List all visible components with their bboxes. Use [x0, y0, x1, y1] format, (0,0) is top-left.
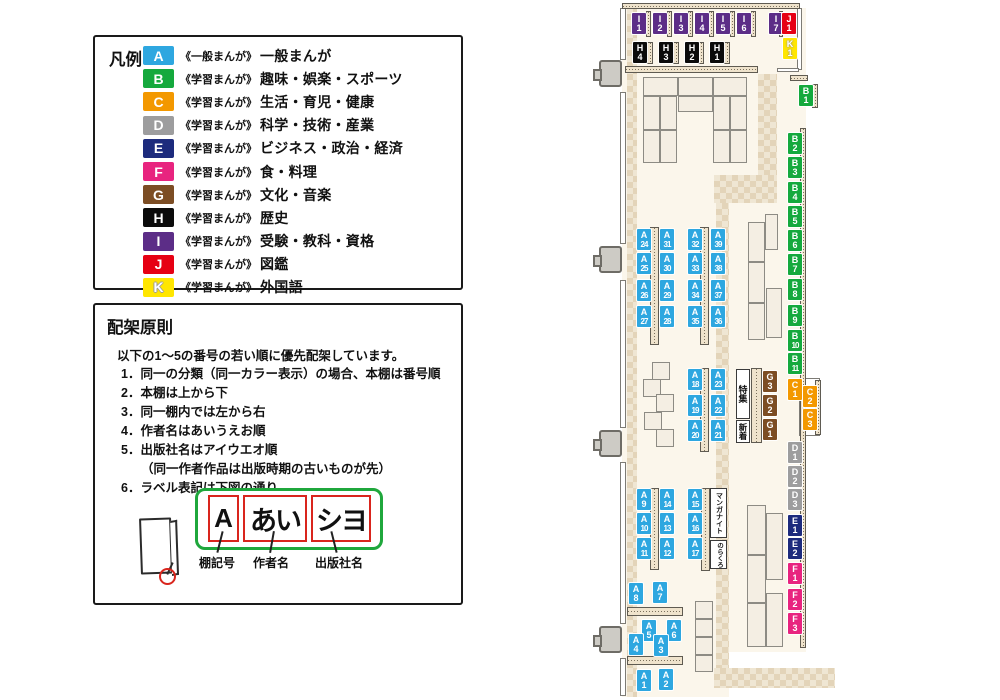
- shelf-block: [652, 362, 670, 380]
- shelf-label-a14: A14: [660, 489, 674, 510]
- shelf-block: [656, 429, 674, 447]
- shelf-label-i3: I3: [674, 13, 688, 34]
- shelf-strip: [627, 656, 683, 665]
- shelf-label-a32: A32: [688, 229, 702, 250]
- shelf-label-j1: J1: [782, 13, 796, 34]
- shelf-label-a30: A30: [660, 253, 674, 274]
- shelf-label-h1: H1: [710, 42, 724, 63]
- shelf-label-i2: I2: [653, 13, 667, 34]
- shelf-label-a6: A6: [667, 620, 681, 641]
- shelf-block: [695, 601, 713, 619]
- shelf-label-a12: A12: [660, 538, 674, 559]
- shelf-label-a18: A18: [688, 369, 702, 390]
- shelf-strip: [724, 42, 730, 64]
- shelf-label-h4: H4: [633, 42, 647, 63]
- shelf-label-b9: B9: [788, 305, 802, 326]
- shelf-label-c3: C3: [803, 409, 817, 430]
- shelf-label-a7: A7: [653, 582, 667, 603]
- shelf-block: [748, 303, 765, 340]
- shelf-label-e1: E1: [788, 515, 802, 536]
- shelf-block: [644, 412, 662, 430]
- shelf-label-a26: A26: [637, 280, 651, 301]
- shelf-label-a37: A37: [711, 280, 725, 301]
- shelf-label-k1: K1: [783, 38, 797, 59]
- shelf-label-a31: A31: [660, 229, 674, 250]
- walkway: [714, 175, 777, 203]
- shelf-label-a34: A34: [688, 280, 702, 301]
- shelf-label-a15: A15: [688, 489, 702, 510]
- shelf-label-a3: A3: [654, 635, 668, 656]
- shelf-label-b8: B8: [788, 279, 802, 300]
- shelf-label-a25: A25: [637, 253, 651, 274]
- shelf-strip: [647, 42, 653, 64]
- wall: [797, 8, 802, 70]
- walkway: [758, 74, 777, 186]
- shelf-strip: [667, 11, 672, 37]
- shelf-label-g3: G3: [763, 371, 777, 392]
- shelf-strip: [701, 488, 710, 571]
- shelf-block: [730, 96, 747, 130]
- shelf-label-a36: A36: [711, 306, 725, 327]
- shelf-label-g1: G1: [763, 419, 777, 440]
- wall: [777, 68, 799, 72]
- shelf-label-c1: C1: [788, 379, 802, 400]
- shelf-strip: [751, 11, 756, 37]
- shelf-label-a9: A9: [637, 489, 651, 510]
- shelf-strip: [622, 3, 800, 9]
- shelf-label-a11: A11: [637, 538, 651, 559]
- shelf-label-b5: B5: [788, 206, 802, 227]
- shelf-block: [643, 96, 660, 130]
- shelf-block: [713, 130, 730, 163]
- shelf-label-b1: B1: [799, 85, 813, 106]
- shelf-label-i5: I5: [716, 13, 730, 34]
- shelf-block: [747, 555, 766, 603]
- shelf-label-a27: A27: [637, 306, 651, 327]
- shelf-label-a19: A19: [688, 395, 702, 416]
- shelf-block: [678, 77, 713, 96]
- feature-box: のらくろ: [710, 540, 727, 569]
- shelf-label-a39: A39: [711, 229, 725, 250]
- shelf-label-i7: I7: [769, 13, 783, 34]
- shelf-label-c2: C2: [803, 386, 817, 407]
- shelf-strip: [673, 42, 679, 64]
- shelf-label-a13: A13: [660, 513, 674, 534]
- shelf-block: [643, 77, 678, 96]
- shelf-strip: [625, 66, 758, 73]
- shelf-label-d3: D3: [788, 489, 802, 510]
- shelf-strip: [646, 11, 651, 37]
- shelf-strip: [688, 11, 693, 37]
- shelf-label-a20: A20: [688, 420, 702, 441]
- shelf-label-g2: G2: [763, 395, 777, 416]
- feature-box: 特集: [736, 369, 750, 419]
- shelf-label-a22: A22: [711, 395, 725, 416]
- shelf-label-a4: A4: [629, 634, 643, 655]
- shelf-block: [766, 593, 783, 647]
- wall: [620, 280, 626, 428]
- shelf-label-a2: A2: [659, 669, 673, 690]
- shelf-block: [678, 96, 713, 112]
- shelf-label-a29: A29: [660, 280, 674, 301]
- shelf-strip: [627, 607, 683, 616]
- shelf-strip: [709, 11, 714, 37]
- shelf-label-f2: F2: [788, 589, 802, 610]
- shelf-block: [695, 655, 713, 672]
- shelf-label-a28: A28: [660, 306, 674, 327]
- shelf-block: [747, 603, 766, 647]
- shelf-label-a1: A1: [637, 670, 651, 691]
- shelf-block: [713, 77, 747, 96]
- floor-map: 特集新着マンガナイトのらくろI1I2I3I4I5I6I7J1K1H4H3H2H1…: [0, 0, 1000, 700]
- shelf-block: [656, 394, 674, 412]
- shelf-label-h3: H3: [659, 42, 673, 63]
- shelf-block: [748, 222, 765, 262]
- shelf-label-f1: F1: [788, 563, 802, 584]
- shelf-strip: [790, 75, 808, 81]
- shelf-label-a17: A17: [688, 538, 702, 559]
- shelf-label-i4: I4: [695, 13, 709, 34]
- wall: [620, 8, 626, 60]
- shelf-label-b2: B2: [788, 133, 802, 154]
- shelf-label-a10: A10: [637, 513, 651, 534]
- feature-box: 新着: [736, 420, 750, 443]
- shelf-label-h2: H2: [685, 42, 699, 63]
- shelf-label-e2: E2: [788, 538, 802, 559]
- wall: [620, 92, 626, 244]
- shelf-label-a21: A21: [711, 420, 725, 441]
- shelf-block: [765, 214, 778, 250]
- shelf-label-b11: B11: [788, 353, 802, 374]
- shelf-label-f3: F3: [788, 613, 802, 634]
- shelf-label-a35: A35: [688, 306, 702, 327]
- shelf-label-b3: B3: [788, 157, 802, 178]
- shelf-strip: [650, 227, 659, 345]
- door-icon: [599, 60, 622, 87]
- shelf-label-a16: A16: [688, 513, 702, 534]
- shelf-label-a24: A24: [637, 229, 651, 250]
- shelf-block: [730, 130, 747, 163]
- shelf-strip: [730, 11, 735, 37]
- door-icon: [599, 430, 622, 457]
- door-icon: [599, 626, 622, 653]
- shelf-label-b4: B4: [788, 182, 802, 203]
- shelf-strip: [751, 368, 762, 443]
- shelf-block: [695, 637, 713, 655]
- door-icon: [599, 246, 622, 273]
- shelf-block: [766, 288, 782, 338]
- shelf-label-a33: A33: [688, 253, 702, 274]
- shelf-label-b6: B6: [788, 230, 802, 251]
- shelf-label-b10: B10: [788, 330, 802, 351]
- wall: [620, 658, 626, 696]
- shelf-block: [660, 130, 677, 163]
- shelf-block: [695, 619, 713, 637]
- shelf-label-i6: I6: [737, 13, 751, 34]
- shelf-label-b7: B7: [788, 254, 802, 275]
- shelf-block: [713, 96, 730, 130]
- feature-box: マンガナイト: [710, 488, 727, 538]
- wall: [620, 462, 626, 624]
- walkway: [714, 668, 835, 688]
- shelf-block: [747, 505, 766, 555]
- shelf-label-d2: D2: [788, 466, 802, 487]
- shelf-label-i1: I1: [632, 13, 646, 34]
- shelf-block: [643, 130, 660, 163]
- shelf-block: [748, 262, 765, 303]
- shelf-strip: [650, 488, 659, 570]
- shelf-label-a8: A8: [629, 583, 643, 604]
- shelf-label-a23: A23: [711, 369, 725, 390]
- shelf-block: [660, 96, 677, 130]
- shelf-block: [766, 513, 783, 580]
- shelf-label-a38: A38: [711, 253, 725, 274]
- shelf-label-d1: D1: [788, 442, 802, 463]
